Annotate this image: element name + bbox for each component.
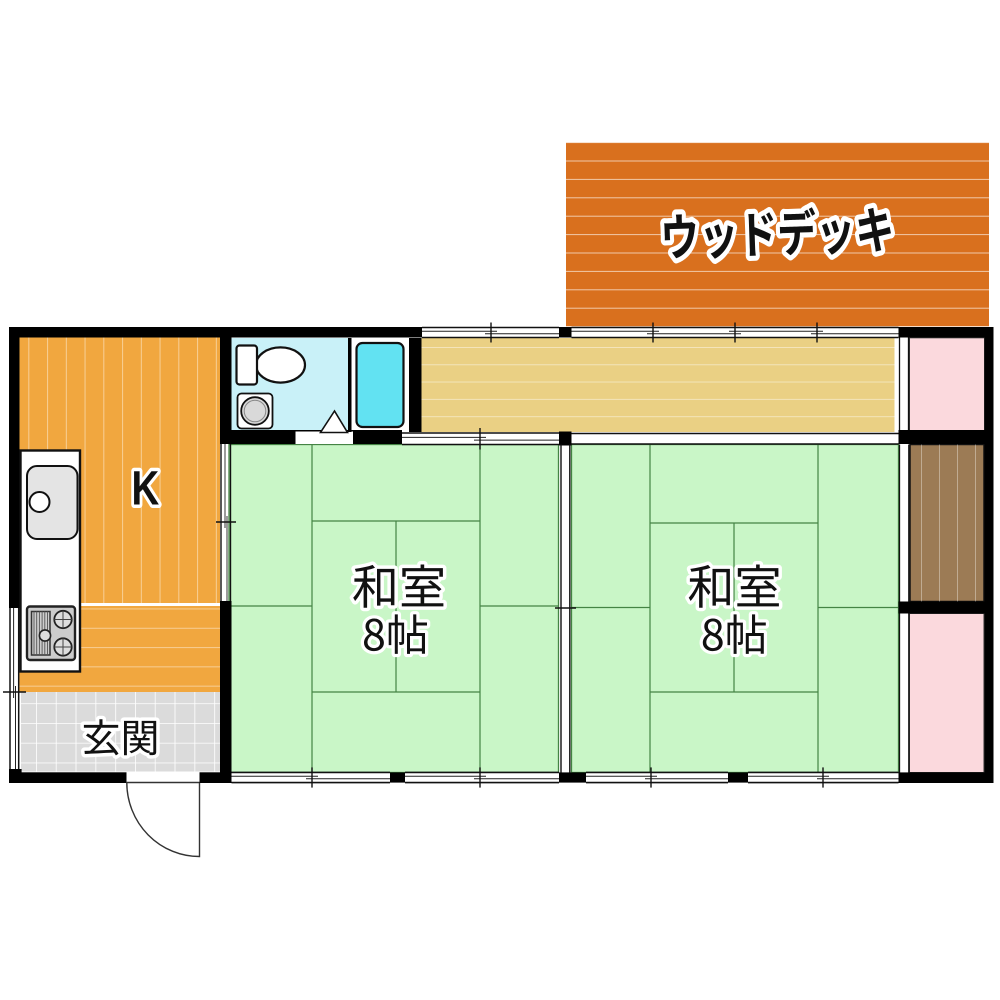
svg-text:K: K <box>131 463 159 516</box>
